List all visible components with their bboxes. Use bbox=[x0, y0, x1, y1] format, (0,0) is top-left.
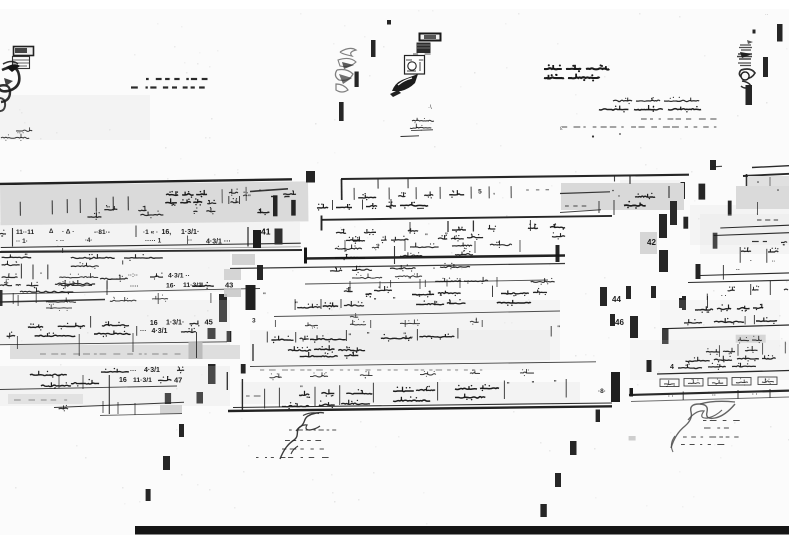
svg-text:": " bbox=[263, 293, 266, 299]
svg-text:": " bbox=[348, 334, 351, 340]
svg-text:· ·: · · bbox=[668, 394, 674, 400]
svg-text:11·3/1: 11·3/1 bbox=[133, 377, 152, 384]
svg-text:11··11: 11··11 bbox=[16, 229, 34, 236]
svg-text:-·81·-: -·81·- bbox=[94, 229, 110, 236]
svg-text:": " bbox=[374, 298, 377, 304]
svg-text:": " bbox=[507, 383, 510, 389]
svg-text:4·3/1: 4·3/1 bbox=[152, 328, 168, 335]
svg-text:4·3/1 ···: 4·3/1 ··· bbox=[206, 239, 231, 246]
svg-text:": " bbox=[532, 382, 535, 388]
svg-text:····· 1: ····· 1 bbox=[145, 238, 162, 245]
svg-text:": " bbox=[393, 298, 396, 304]
svg-text:42: 42 bbox=[647, 238, 656, 247]
svg-text:5: 5 bbox=[478, 188, 482, 195]
svg-text:44: 44 bbox=[612, 295, 621, 304]
svg-text:": " bbox=[15, 274, 17, 280]
svg-text:1·3/1·: 1·3/1· bbox=[166, 319, 184, 326]
svg-text:·· 1·: ·· 1· bbox=[16, 238, 28, 245]
svg-text:·1 « ·: ·1 « · bbox=[143, 229, 158, 236]
svg-text:": " bbox=[40, 273, 42, 279]
svg-text:Δ: Δ bbox=[49, 229, 54, 235]
svg-text:3: 3 bbox=[252, 318, 256, 325]
svg-text:··: ·· bbox=[712, 393, 716, 399]
svg-text:·4·: ·4· bbox=[85, 238, 92, 244]
svg-text:···: ··· bbox=[140, 328, 147, 335]
svg-text:··: ·· bbox=[765, 12, 769, 18]
svg-text:4·3/1 ··: 4·3/1 ·· bbox=[168, 273, 190, 280]
svg-text:4: 4 bbox=[670, 364, 674, 371]
svg-text:· ··: · ·· bbox=[56, 238, 64, 245]
svg-text:···: ··· bbox=[130, 368, 137, 375]
svg-text:": " bbox=[445, 233, 448, 239]
svg-text:·8·: ·8· bbox=[598, 388, 606, 395]
svg-text:·: · bbox=[750, 259, 752, 265]
svg-text:· ·: · · bbox=[721, 294, 727, 300]
svg-text:··: ·· bbox=[736, 268, 740, 274]
svg-text:· ·: · · bbox=[752, 392, 758, 398]
svg-text:4·3/1: 4·3/1 bbox=[144, 367, 160, 374]
svg-text:··: ·· bbox=[188, 237, 192, 244]
svg-text:45: 45 bbox=[205, 317, 213, 326]
svg-text:16: 16 bbox=[150, 320, 158, 327]
svg-text:": " bbox=[295, 302, 298, 308]
svg-text:": " bbox=[433, 268, 435, 274]
svg-text:,: , bbox=[493, 189, 495, 196]
svg-text:": " bbox=[554, 381, 557, 387]
svg-text:··:··: ··:·· bbox=[128, 273, 138, 279]
svg-text:····: ···· bbox=[130, 283, 139, 290]
svg-text:·\: ·\ bbox=[428, 105, 432, 111]
svg-text:ε: ε bbox=[560, 126, 563, 132]
svg-text:41: 41 bbox=[261, 227, 271, 237]
svg-text:": " bbox=[367, 333, 370, 339]
svg-text:· Δ ·: · Δ · bbox=[62, 229, 74, 236]
svg-text:47: 47 bbox=[174, 376, 182, 385]
svg-text:": " bbox=[425, 234, 428, 240]
svg-text:··: ·· bbox=[772, 259, 776, 265]
svg-text:": " bbox=[248, 195, 251, 201]
svg-text:16: 16 bbox=[119, 377, 127, 384]
svg-text:": " bbox=[557, 326, 560, 332]
svg-text:46: 46 bbox=[615, 318, 624, 327]
svg-text:16·: 16· bbox=[166, 283, 176, 290]
svg-text:": " bbox=[408, 277, 411, 283]
svg-text:": " bbox=[300, 386, 303, 392]
svg-text:1·3/1·: 1·3/1· bbox=[181, 229, 199, 236]
svg-text:11·3/1: 11·3/1 bbox=[183, 282, 202, 289]
svg-text:16,: 16, bbox=[162, 229, 172, 236]
